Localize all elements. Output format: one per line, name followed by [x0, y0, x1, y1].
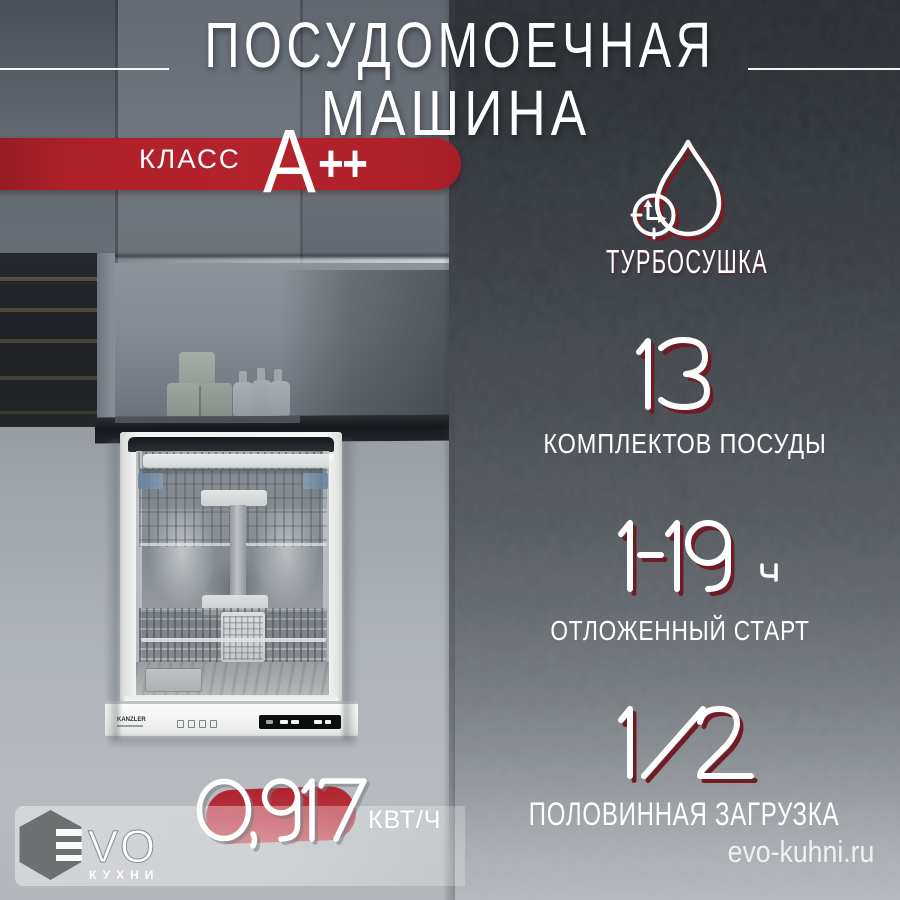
svg-text:КУХНИ: КУХНИ	[89, 868, 159, 882]
svg-text:VO: VO	[88, 821, 157, 872]
